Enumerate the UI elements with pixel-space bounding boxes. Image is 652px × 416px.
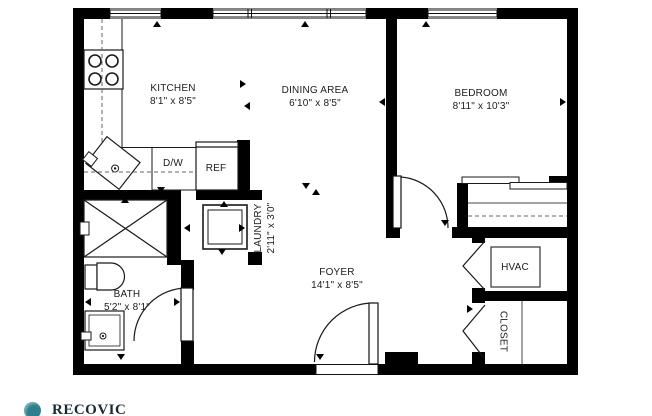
bedroom-closet	[462, 177, 567, 216]
vanity-sink-icon	[81, 311, 124, 350]
window-bedroom-icon	[428, 9, 497, 19]
room-name: CLOSET	[497, 297, 510, 367]
kitchen-sink-icon	[82, 134, 140, 190]
room-dims: 5'2" x 8'1"	[77, 301, 177, 314]
bifold-door-closet-icon	[463, 305, 485, 358]
room-label-kitchen: KITCHEN 8'1" x 8'5"	[113, 82, 233, 108]
room-dims: 8'11" x 10'3"	[421, 100, 541, 113]
logo-text: RECOVIC	[52, 402, 126, 416]
logo-circle-icon	[24, 402, 41, 416]
room-label-foyer: FOYER 14'1" x 8'5"	[277, 266, 397, 292]
room-dims: 14'1" x 8'5"	[277, 279, 397, 292]
company-logo: RECOVIC	[24, 402, 126, 416]
appliance-label-refrigerator: REF	[191, 162, 241, 175]
bifold-door-hvac-icon	[463, 241, 485, 290]
floorplan-drawing	[0, 0, 652, 416]
room-dims: 8'1" x 8'5"	[113, 95, 233, 108]
entry-door-icon	[315, 303, 379, 364]
room-dims: 2'11" x 3'0"	[265, 193, 278, 263]
entry-opening	[316, 364, 378, 376]
window-dining-icon	[213, 9, 366, 19]
room-label-bedroom: BEDROOM 8'11" x 10'3"	[421, 87, 541, 113]
sliding-door-icon	[510, 183, 567, 190]
toilet-icon	[85, 263, 125, 290]
room-label-closet: CLOSET	[497, 297, 510, 367]
room-name: KITCHEN	[113, 82, 233, 95]
room-label-laundry: LAUNDRY 2'11" x 3'0"	[252, 193, 278, 263]
room-label-dining: DINING AREA 6'10" x 8'5"	[255, 84, 375, 110]
shower-icon	[80, 200, 167, 257]
room-name: DINING AREA	[255, 84, 375, 97]
room-name: HVAC	[490, 261, 540, 274]
room-label-bath: BATH 5'2" x 8'1"	[77, 288, 177, 314]
room-name: BEDROOM	[421, 87, 541, 100]
room-name: BATH	[77, 288, 177, 301]
floorplan-canvas: KITCHEN 8'1" x 8'5" DINING AREA 6'10" x …	[0, 0, 652, 416]
bedroom-door-icon	[393, 176, 448, 228]
window-kitchen-icon	[110, 9, 161, 19]
room-name: LAUNDRY	[252, 193, 265, 263]
room-name: FOYER	[277, 266, 397, 279]
room-label-hvac: HVAC	[490, 261, 540, 274]
room-dims: 6'10" x 8'5"	[255, 97, 375, 110]
